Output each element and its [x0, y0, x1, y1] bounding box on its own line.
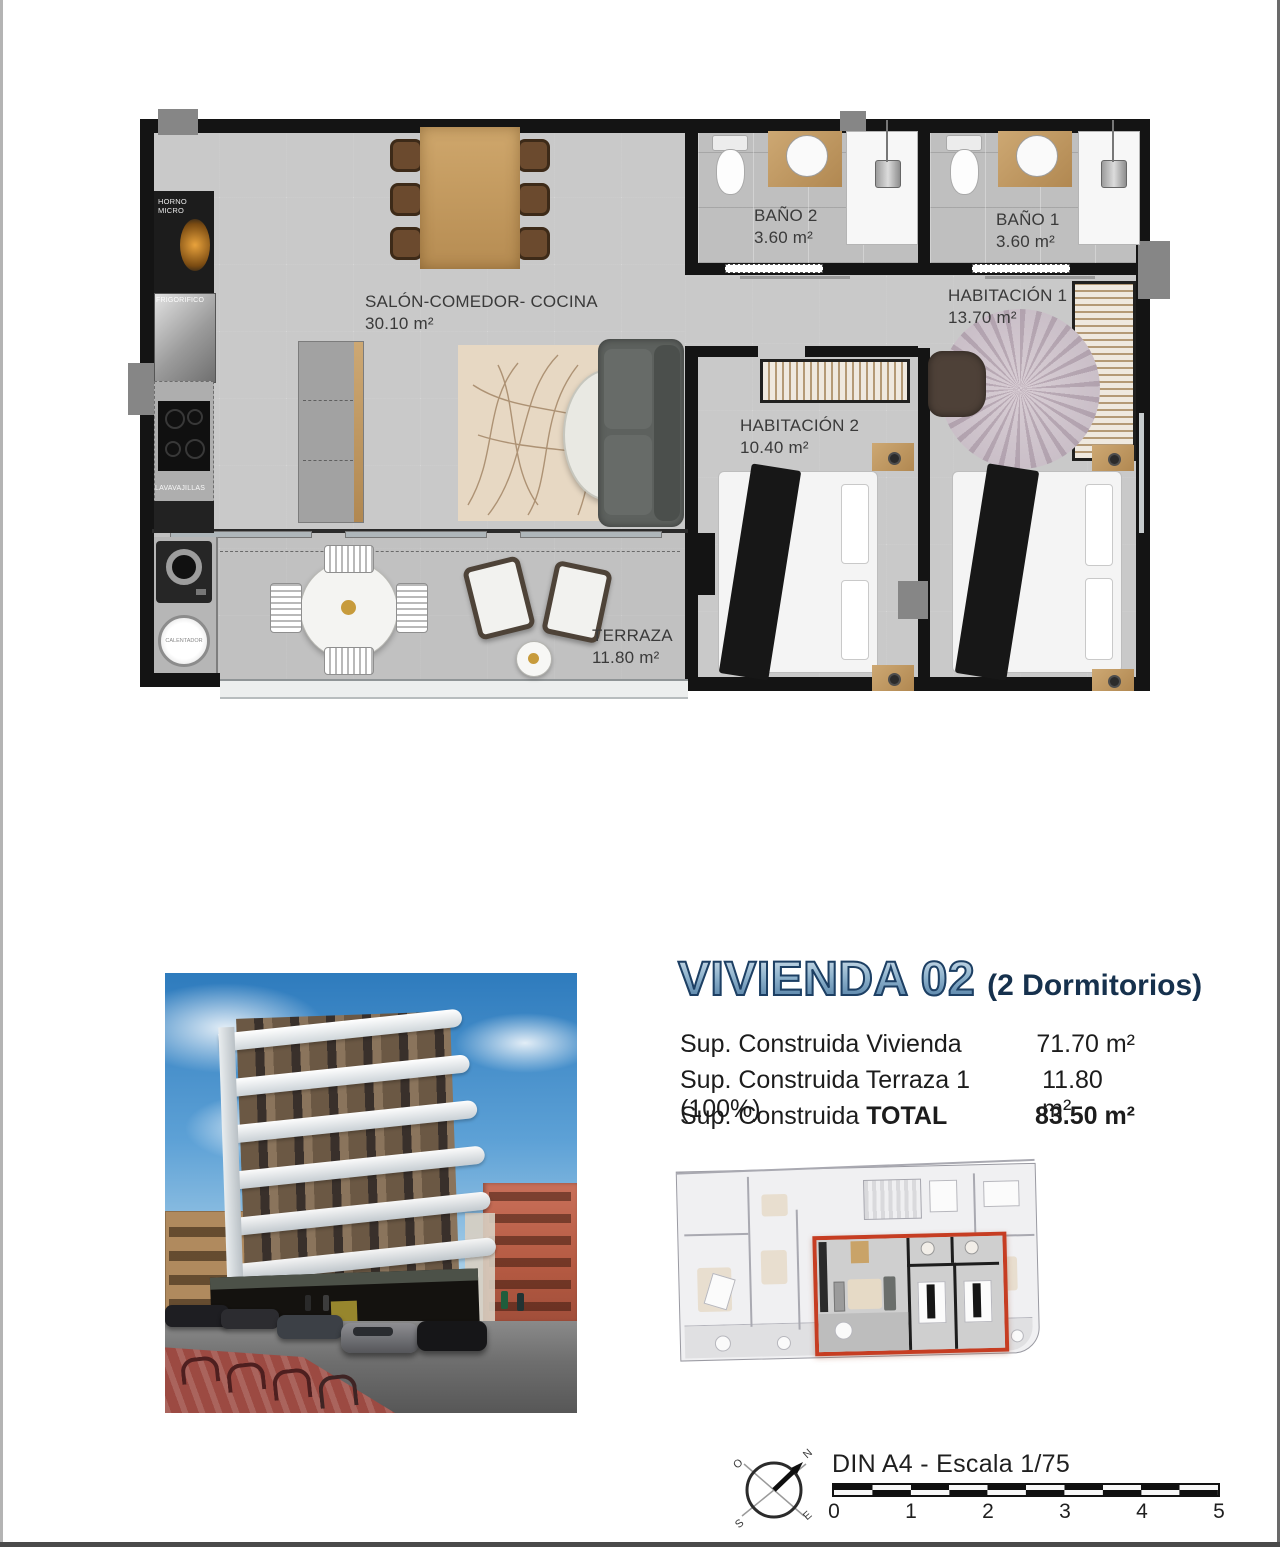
- bed-throw: [719, 463, 802, 680]
- terrace-side-table: [516, 641, 552, 677]
- terrace-chair: [270, 583, 302, 633]
- pedestrian: [517, 1293, 524, 1311]
- terrace-centerpiece: [341, 600, 356, 615]
- background-building-right: [483, 1183, 577, 1323]
- island-wood-edge: [354, 342, 363, 522]
- wall-living-bath2: [685, 119, 698, 265]
- bed-hab1: [952, 471, 1122, 673]
- kitchen-appliance: [154, 501, 214, 533]
- keyplan-unit-bed-throw: [973, 1283, 982, 1317]
- shower-bath2: [846, 131, 918, 245]
- room-area: 13.70 m²: [948, 307, 1067, 329]
- washer-panel: [196, 589, 206, 595]
- scale-title: DIN A4 - Escala 1/75: [832, 1450, 1070, 1479]
- keyplan-bed: [983, 1180, 1020, 1207]
- spec-value: 83.50 m²: [1035, 1102, 1135, 1131]
- washer-door: [166, 549, 202, 585]
- wall-hab2-top-a: [698, 346, 758, 357]
- scale-bar-row: [834, 1490, 1218, 1495]
- bike-rack: [317, 1373, 358, 1409]
- label-hab1: HABITACIÓN 1 13.70 m²: [948, 285, 1067, 329]
- spec-value: 71.70 m²: [1036, 1030, 1135, 1059]
- dining-chair: [390, 183, 423, 216]
- side-table-item: [528, 653, 539, 664]
- terrace-dashed-line: [220, 551, 680, 552]
- fridge-label: FRIGORIFICO: [156, 297, 204, 305]
- unit-title: VIVIENDA 02: [678, 952, 975, 1007]
- keyplan-unit-table: [850, 1241, 869, 1263]
- building-photo: [165, 973, 577, 1413]
- scale-number: 1: [905, 1500, 917, 1524]
- nightstand-hab2-bottom: [872, 665, 914, 691]
- keyplan-unit-sofa: [883, 1276, 896, 1310]
- door-track-bath1: [985, 276, 1095, 279]
- spec-label: Sup. Construida: [680, 1102, 866, 1130]
- keyplan-unit-bed: [917, 1281, 946, 1324]
- wall-bath1-bath2: [918, 119, 930, 275]
- island-line: [303, 460, 353, 461]
- room-name: HABITACIÓN 1: [948, 285, 1067, 307]
- nightstand-hab1-bottom: [1092, 669, 1134, 691]
- room-name: BAÑO 2: [754, 205, 818, 227]
- bike-rack: [226, 1361, 267, 1393]
- label-hab2: HABITACIÓN 2 10.40 m²: [740, 415, 859, 459]
- column-left: [128, 363, 156, 415]
- oven-glow: [180, 219, 210, 271]
- balcony-rail: [220, 679, 688, 699]
- cloud: [455, 1013, 577, 1073]
- sofa-back: [654, 345, 680, 521]
- label-terraza: TERRAZA 11.80 m²: [592, 625, 673, 669]
- pillow: [841, 580, 869, 660]
- keyplan-unit-rug: [847, 1279, 882, 1310]
- room-name: SALÓN-COMEDOR- COCINA: [365, 291, 598, 313]
- shower-pipe: [886, 120, 888, 162]
- sofa-cushion: [604, 435, 652, 515]
- wall-hab2-top-b: [805, 346, 918, 357]
- island-line: [303, 400, 353, 401]
- shower-head: [875, 160, 901, 188]
- terrace-chair: [324, 647, 374, 675]
- bike-rack: [180, 1355, 221, 1385]
- fridge: [154, 293, 216, 383]
- scale-numbers: 0 1 2 3 4 5: [832, 1500, 1220, 1524]
- kitchen-island: [298, 341, 364, 523]
- water-heater-label: CALENTADOR: [165, 638, 202, 644]
- washing-machine: [156, 541, 212, 603]
- keyplan-unit-highlight: [812, 1232, 1009, 1357]
- bed-throw: [955, 463, 1040, 681]
- scale-number: 4: [1136, 1500, 1148, 1524]
- toilet-bath2: [716, 149, 745, 195]
- keyplan-wall: [677, 1159, 1035, 1175]
- unit-subtitle: (2 Dormitorios): [987, 969, 1202, 1003]
- keyplan-unit-bed: [963, 1280, 992, 1323]
- shower-pipe: [1112, 120, 1114, 162]
- nightstand-hab2-top: [872, 443, 914, 471]
- pedestrian: [501, 1291, 508, 1309]
- keyplan-unit-kitchen: [818, 1242, 828, 1312]
- toilet-bath1: [950, 149, 979, 195]
- room-area: 30.10 m²: [365, 313, 598, 335]
- compass: N O S E: [728, 1446, 820, 1538]
- room-name: TERRAZA: [592, 625, 673, 647]
- keyplan-wall: [747, 1177, 753, 1327]
- keyplan-stairwell: [863, 1179, 922, 1220]
- keyplan-wall: [684, 1233, 748, 1237]
- bed-hab2: [718, 471, 878, 673]
- burner: [187, 409, 203, 425]
- brochure-page: { "floorplan": { "rooms": { "salon": {"n…: [0, 0, 1280, 1547]
- door-track-bath2: [740, 276, 850, 279]
- window-panel-3: [520, 531, 662, 538]
- column-top-left: [158, 109, 198, 135]
- floor-plan: HORNO MICRO FRIGORIFICO LAVAVAJILLAS: [140, 113, 1155, 707]
- car: [277, 1315, 343, 1339]
- page-edge-left: [0, 0, 3, 1547]
- pillow: [841, 484, 869, 564]
- car-windows: [353, 1327, 393, 1336]
- unit-specs: Sup. Construida Vivienda 71.70 m² Sup. C…: [680, 1030, 1135, 1138]
- dining-chair: [390, 139, 423, 172]
- scale-number: 5: [1213, 1500, 1225, 1524]
- oven-label: HORNO MICRO: [158, 197, 187, 215]
- pillow: [1085, 484, 1113, 566]
- spec-label: Sup. Construida Vivienda: [680, 1030, 962, 1058]
- pedestrian: [305, 1295, 311, 1311]
- wall-terrace-jog: [685, 533, 715, 595]
- car-silver: [341, 1323, 419, 1353]
- keyplan-wall: [796, 1210, 801, 1330]
- dining-chair: [517, 227, 550, 260]
- keyplan-unit-bed-throw: [927, 1284, 936, 1318]
- terrace-chair: [396, 583, 428, 633]
- burner: [185, 439, 205, 459]
- scale-number: 0: [828, 1500, 840, 1524]
- dining-chair: [517, 139, 550, 172]
- terrace-chair: [324, 545, 374, 573]
- keyplan-unit-terrace: [818, 1312, 909, 1352]
- wall-bottom-closet: [140, 673, 220, 687]
- sofa-cushion: [604, 349, 652, 429]
- scale-number: 3: [1059, 1500, 1071, 1524]
- car-dark: [417, 1321, 487, 1351]
- shower-bath1: [1078, 131, 1140, 245]
- pillow: [1085, 578, 1113, 660]
- chair-hab1: [928, 351, 986, 417]
- column-hab2: [898, 581, 928, 619]
- cooktop: [158, 401, 210, 471]
- wall-living-hab2: [685, 346, 698, 689]
- sliding-door-bath2: [725, 264, 823, 273]
- room-area: 3.60 m²: [754, 227, 818, 249]
- keyplan-rug: [761, 1250, 788, 1285]
- label-bano1: BAÑO 1 3.60 m²: [996, 209, 1060, 253]
- dining-chair: [390, 227, 423, 260]
- car: [221, 1309, 279, 1329]
- car: [165, 1305, 229, 1327]
- nightstand-hab1-top: [1092, 445, 1134, 471]
- dining-table: [420, 127, 520, 269]
- terrace-table: [300, 561, 398, 659]
- label-salon: SALÓN-COMEDOR- COCINA 30.10 m²: [365, 291, 598, 335]
- window-panel-2: [345, 531, 487, 538]
- keyplan-bed: [929, 1180, 958, 1213]
- sink-bath2: [786, 135, 828, 177]
- keyplan-rug: [761, 1194, 788, 1217]
- sofa: [598, 339, 684, 527]
- key-plan: [669, 1150, 1144, 1373]
- room-area: 11.80 m²: [592, 647, 673, 669]
- room-area: 3.60 m²: [996, 231, 1060, 253]
- spec-row-terraza: Sup. Construida Terraza 1 (100%) 11.80 m…: [680, 1066, 1135, 1102]
- spec-row-total: Sup. Construida TOTAL 83.50 m²: [680, 1102, 1135, 1138]
- burner: [165, 441, 181, 457]
- dishwasher-label: LAVAVAJILLAS: [155, 485, 205, 493]
- keyplan-unit-island: [833, 1282, 845, 1312]
- room-name: BAÑO 1: [996, 209, 1060, 231]
- spec-label-bold: TOTAL: [866, 1102, 947, 1130]
- hab1-window: [1139, 413, 1144, 533]
- scale-number: 2: [982, 1500, 994, 1524]
- unit-header: VIVIENDA 02 (2 Dormitorios): [678, 952, 1202, 1007]
- spec-row-vivienda: Sup. Construida Vivienda 71.70 m²: [680, 1030, 1135, 1066]
- bike-rack: [272, 1367, 313, 1401]
- shower-head: [1101, 160, 1127, 188]
- page-edge-bottom: [0, 1542, 1280, 1547]
- keyplan-unit-wall: [950, 1237, 954, 1263]
- column-right: [1138, 241, 1170, 299]
- sliding-door-bath1: [972, 264, 1070, 273]
- wardrobe-hab2: [760, 359, 910, 403]
- water-heater: CALENTADOR: [158, 615, 210, 667]
- room-area: 10.40 m²: [740, 437, 859, 459]
- burner: [165, 409, 185, 429]
- label-bano2: BAÑO 2 3.60 m²: [754, 205, 818, 249]
- room-name: HABITACIÓN 2: [740, 415, 859, 437]
- pedestrian: [323, 1295, 329, 1311]
- sink-bath1: [1016, 135, 1058, 177]
- column-top-mid: [840, 111, 866, 131]
- scale-bar: [832, 1483, 1220, 1497]
- dining-chair: [517, 183, 550, 216]
